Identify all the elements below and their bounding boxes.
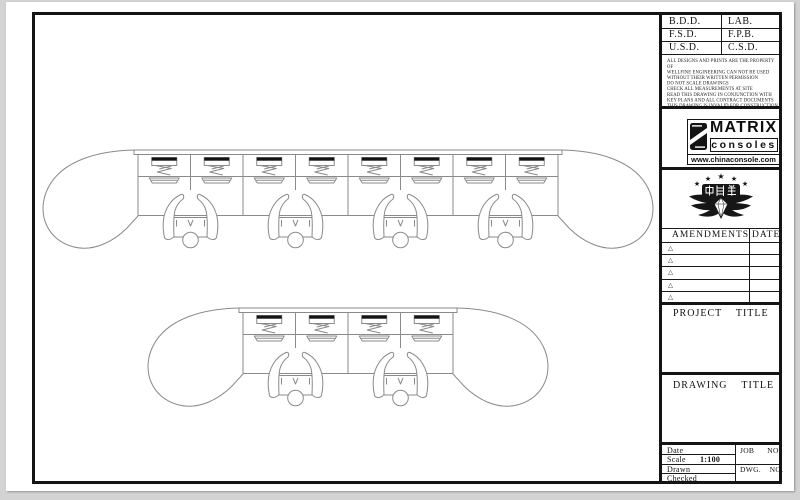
approval-cell: C.S.D. xyxy=(728,41,758,54)
divider-line xyxy=(662,242,779,243)
svg-text:★: ★ xyxy=(742,180,748,188)
brand-website: www.chinaconsole.com xyxy=(687,154,780,165)
approval-cell: B.D.D. xyxy=(669,15,701,28)
section-divider xyxy=(662,167,779,170)
section-divider xyxy=(662,372,779,375)
project-title-label: PROJECT TITLE xyxy=(673,308,769,319)
dwg-no-label: DWG. NO. xyxy=(740,465,783,474)
divider-line xyxy=(662,54,779,55)
disclaimer-block: ALL DESIGNS AND PRINTS ARE THE PROPERTY … xyxy=(667,58,779,106)
amendment-row-marker: △ xyxy=(668,254,673,266)
approval-cell: F.S.D. xyxy=(669,28,697,41)
approval-cell: U.S.D. xyxy=(669,41,700,54)
disclaimer-line: ALL DESIGNS AND PRINTS ARE THE PROPERTY … xyxy=(667,58,779,69)
job-no-label: JOB NO. xyxy=(740,446,781,455)
matrix-logo-icon xyxy=(690,123,707,150)
section-divider xyxy=(662,106,779,109)
company-badge: ★ ★ ★ ★ ★ xyxy=(687,171,755,226)
amendments-header: AMENDMENTS xyxy=(672,230,749,240)
divider-line xyxy=(662,454,735,455)
drawing-title-label: DRAWING TITLE xyxy=(673,380,774,391)
amendment-row-marker: △ xyxy=(668,242,673,254)
divider-line xyxy=(749,228,750,302)
divider-line xyxy=(662,254,779,255)
divider-line xyxy=(662,464,779,465)
titleblock-divider xyxy=(659,15,662,481)
section-divider xyxy=(662,302,779,305)
brand-name: MATRIX xyxy=(710,119,777,137)
divider-line xyxy=(662,228,779,229)
amendment-row-marker: △ xyxy=(668,279,673,291)
divider-line xyxy=(735,445,736,481)
svg-text:★: ★ xyxy=(731,175,737,183)
checked-label: Checked xyxy=(667,474,697,483)
brand-product: consoles xyxy=(710,138,778,152)
amendment-row-marker: △ xyxy=(668,266,673,278)
cad-sheet-screen: B.D.D. LAB. F.S.D. F.P.B. U.S.D. C.S.D. … xyxy=(0,0,800,500)
approval-cell: LAB. xyxy=(728,15,753,28)
svg-text:★: ★ xyxy=(694,180,700,188)
divider-line xyxy=(662,279,779,280)
divider-line xyxy=(662,291,779,292)
approval-cell: F.P.B. xyxy=(728,28,754,41)
disclaimer-line: READ THIS DRAWING IN CONJUNCTION WITH xyxy=(667,92,779,98)
divider-line xyxy=(662,266,779,267)
amendments-date-header: DATE xyxy=(752,230,780,240)
svg-text:★: ★ xyxy=(717,172,724,181)
divider-line xyxy=(662,473,735,474)
divider-line xyxy=(721,15,722,54)
svg-text:★: ★ xyxy=(705,175,711,183)
